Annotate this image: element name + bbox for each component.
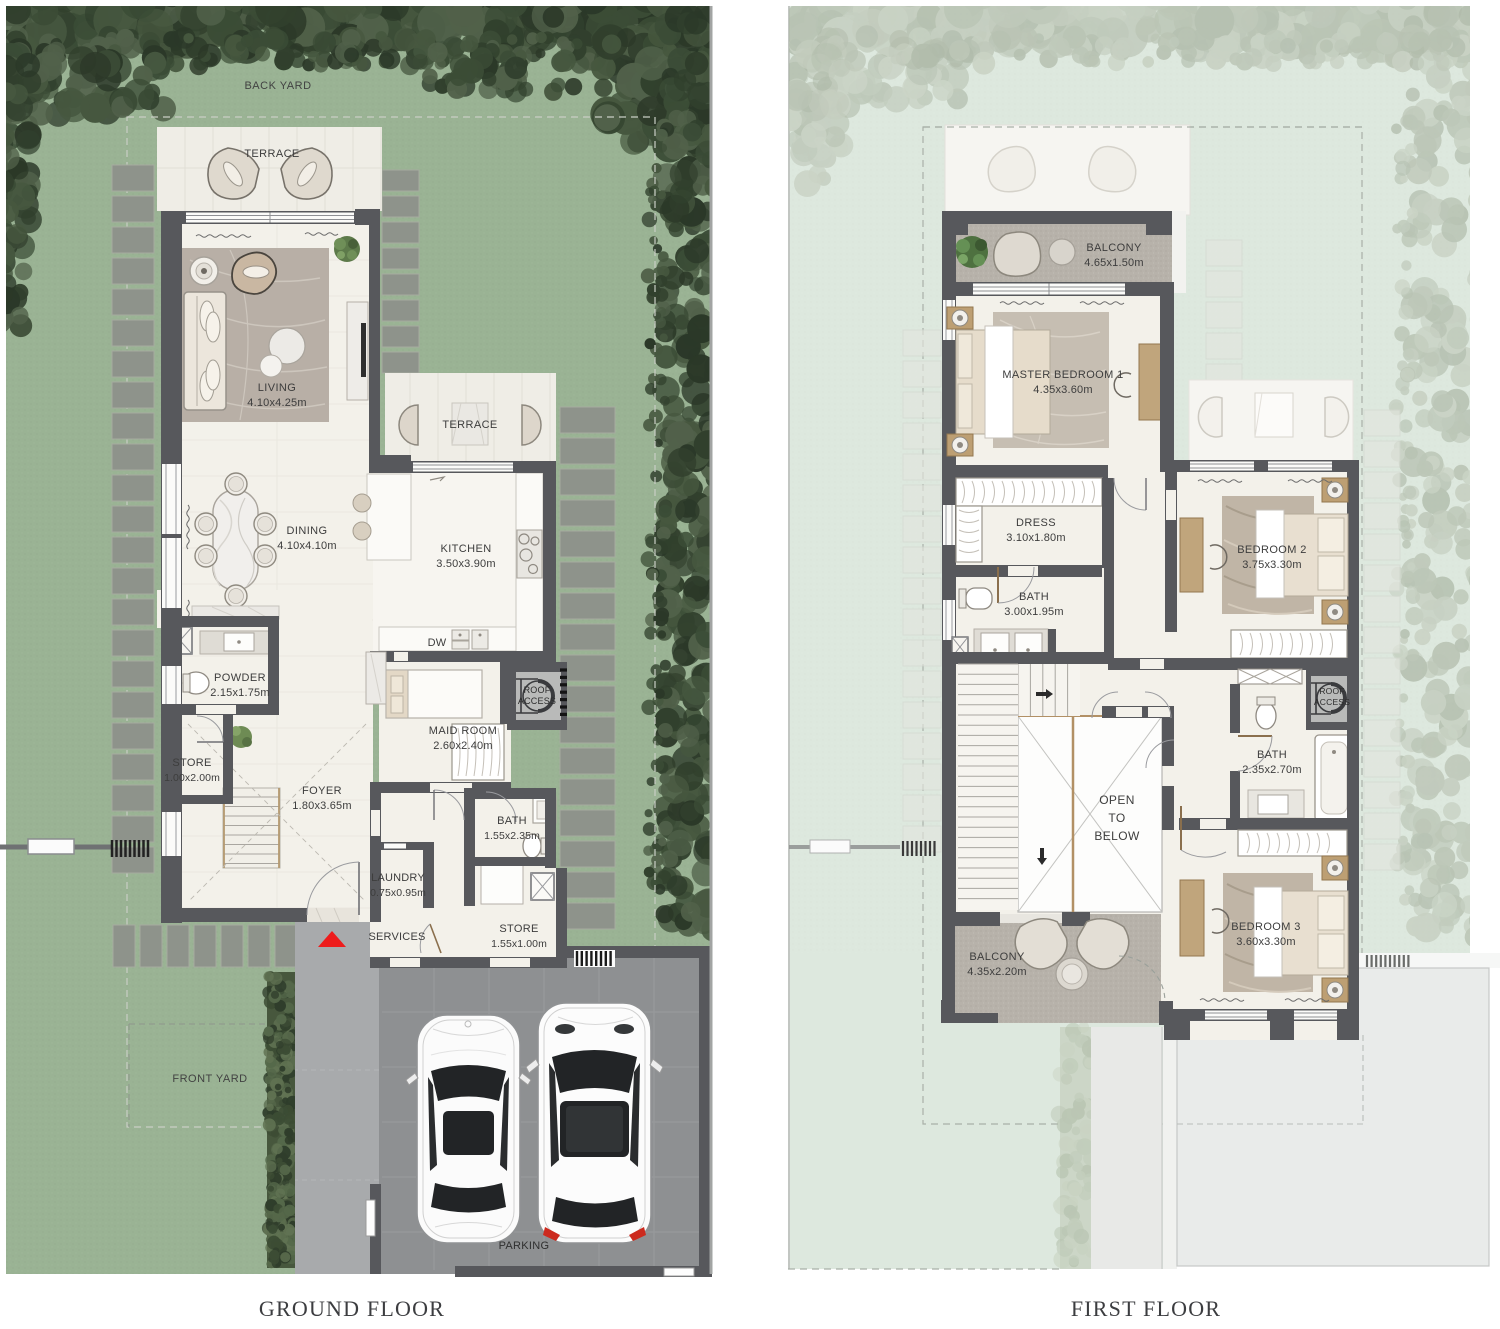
- svg-text:4.35x3.60m: 4.35x3.60m: [1033, 384, 1092, 396]
- svg-text:LIVING: LIVING: [258, 382, 296, 394]
- svg-text:PARKING: PARKING: [499, 1240, 550, 1252]
- svg-text:OPEN: OPEN: [1099, 793, 1135, 807]
- svg-text:MASTER BEDROOM 1: MASTER BEDROOM 1: [1002, 369, 1123, 381]
- svg-text:BATH: BATH: [1257, 749, 1287, 761]
- svg-text:3.10x1.80m: 3.10x1.80m: [1006, 532, 1065, 544]
- svg-text:1.80x3.65m: 1.80x3.65m: [292, 800, 351, 812]
- svg-text:SERVICES: SERVICES: [368, 931, 425, 943]
- svg-text:GROUND FLOOR: GROUND FLOOR: [259, 1296, 445, 1321]
- svg-text:BELOW: BELOW: [1094, 829, 1140, 843]
- svg-text:BACK YARD: BACK YARD: [244, 80, 311, 92]
- svg-text:1.00x2.00m: 1.00x2.00m: [164, 772, 220, 784]
- svg-text:4.10x4.25m: 4.10x4.25m: [247, 397, 306, 409]
- svg-text:BALCONY: BALCONY: [1086, 242, 1142, 254]
- svg-text:TERRACE: TERRACE: [244, 148, 299, 160]
- svg-text:ACCESS: ACCESS: [518, 696, 556, 706]
- svg-text:3.00x1.95m: 3.00x1.95m: [1004, 606, 1063, 618]
- svg-text:4.65x1.50m: 4.65x1.50m: [1084, 257, 1143, 269]
- svg-text:KITCHEN: KITCHEN: [440, 543, 491, 555]
- svg-text:DW: DW: [428, 637, 447, 649]
- svg-text:3.60x3.30m: 3.60x3.30m: [1236, 936, 1295, 948]
- svg-text:4.10x4.10m: 4.10x4.10m: [277, 540, 336, 552]
- svg-text:TERRACE: TERRACE: [442, 419, 497, 431]
- svg-text:2.15x1.75m: 2.15x1.75m: [210, 687, 269, 699]
- svg-text:FRONT YARD: FRONT YARD: [172, 1073, 247, 1085]
- svg-text:1.55x1.00m: 1.55x1.00m: [491, 938, 547, 950]
- svg-text:3.50x3.90m: 3.50x3.90m: [436, 558, 495, 570]
- svg-text:MAID ROOM: MAID ROOM: [429, 725, 497, 737]
- svg-text:3.75x3.30m: 3.75x3.30m: [1242, 559, 1301, 571]
- svg-text:ROOF: ROOF: [524, 685, 551, 695]
- svg-text:0.75x0.95m: 0.75x0.95m: [370, 887, 426, 899]
- svg-text:BALCONY: BALCONY: [969, 951, 1025, 963]
- svg-text:STORE: STORE: [172, 757, 211, 769]
- svg-text:ACCESS: ACCESS: [1314, 697, 1350, 707]
- svg-text:TO: TO: [1108, 811, 1125, 825]
- svg-text:BEDROOM 3: BEDROOM 3: [1231, 921, 1301, 933]
- svg-text:ROOF: ROOF: [1319, 686, 1344, 696]
- svg-text:4.35x2.20m: 4.35x2.20m: [967, 966, 1026, 978]
- svg-text:2.60x2.40m: 2.60x2.40m: [433, 740, 492, 752]
- svg-text:DRESS: DRESS: [1016, 517, 1056, 529]
- svg-text:2.35x2.70m: 2.35x2.70m: [1242, 764, 1301, 776]
- svg-text:BEDROOM 2: BEDROOM 2: [1237, 544, 1307, 556]
- svg-text:POWDER: POWDER: [214, 672, 266, 684]
- svg-text:LAUNDRY: LAUNDRY: [371, 872, 425, 884]
- svg-text:BATH: BATH: [1019, 591, 1049, 603]
- svg-text:STORE: STORE: [499, 923, 538, 935]
- svg-text:BATH: BATH: [497, 815, 527, 827]
- svg-text:DINING: DINING: [287, 525, 328, 537]
- svg-text:FIRST FLOOR: FIRST FLOOR: [1071, 1296, 1221, 1321]
- svg-text:1.55x2.35m: 1.55x2.35m: [484, 830, 540, 842]
- svg-text:FOYER: FOYER: [302, 785, 342, 797]
